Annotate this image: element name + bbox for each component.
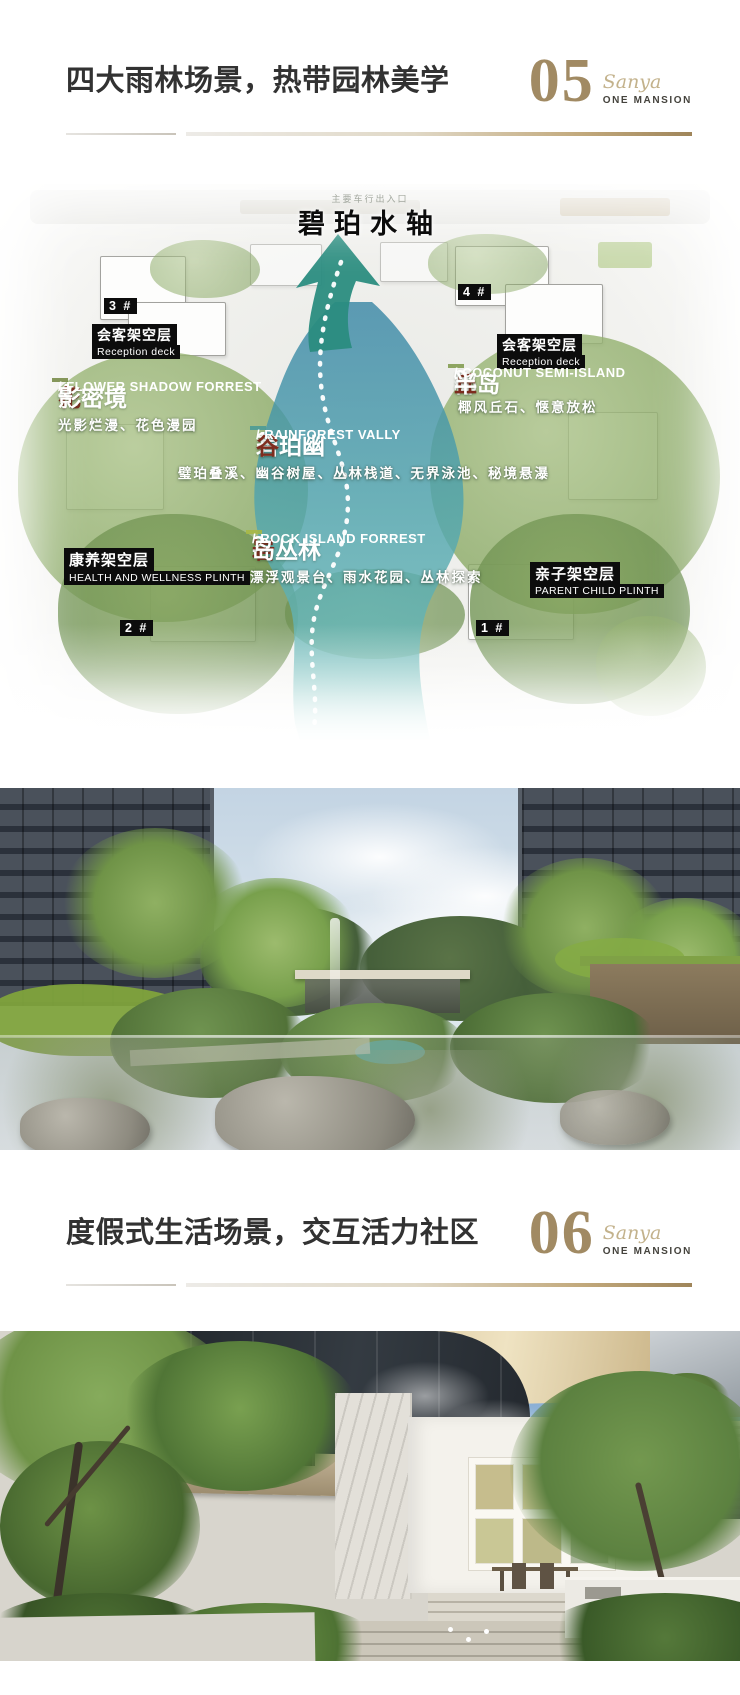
brand-block: 06 Sanya ONE MANSION bbox=[529, 1207, 692, 1260]
section-06-header: 度假式生活场景，交互活力社区 06 Sanya ONE MANSION bbox=[66, 1207, 692, 1288]
garden-render-photo bbox=[0, 788, 740, 1150]
section-05-title: 四大雨林场景，热带园林美学 bbox=[66, 55, 450, 101]
zone-features: 光影烂漫、花色漫园 bbox=[58, 414, 198, 434]
health-wellness-plinth-zh: 康养架空层 bbox=[64, 548, 154, 571]
zone-features: 椰风丘石、惬意放松 bbox=[458, 396, 598, 416]
divider-left-segment bbox=[66, 1284, 176, 1286]
tree-canopy bbox=[0, 1441, 200, 1611]
terrace-chair bbox=[512, 1563, 526, 1589]
building-tag-2: 2 # bbox=[120, 620, 153, 636]
section-divider bbox=[66, 1283, 692, 1287]
brand-script-logo: Sanya bbox=[603, 73, 692, 92]
building-tag-3: 3 # bbox=[104, 298, 137, 314]
section-06-title: 度假式生活场景，交互活力社区 bbox=[66, 1207, 479, 1253]
divider-gold-segment bbox=[186, 1283, 692, 1287]
brand-wordmark: ONE MANSION bbox=[603, 95, 692, 106]
clubhouse-entry-render-photo bbox=[0, 1331, 740, 1661]
window-pane bbox=[475, 1464, 514, 1510]
building-tag-4: 4 # bbox=[458, 284, 491, 300]
parent-child-plinth-zh: 亲子架空层 bbox=[530, 562, 620, 585]
building-tag-1: 1 # bbox=[476, 620, 509, 636]
window-pane bbox=[475, 1518, 514, 1564]
reception-deck-label-en: Reception deck bbox=[92, 345, 180, 359]
parent-child-plinth-en: PARENT CHILD PLINTH bbox=[530, 584, 664, 598]
garden-pavilion-roof bbox=[295, 970, 470, 979]
marble-pillar bbox=[335, 1393, 412, 1599]
section-05-number: 05 bbox=[529, 55, 595, 108]
divider-gold-segment bbox=[186, 132, 692, 136]
zone-features: 璧珀叠溪、幽谷树屋、丛林栈道、无界泳池、秘境悬瀑 bbox=[178, 462, 550, 482]
health-wellness-plinth-en: HEALTH AND WELLNESS PLINTH bbox=[64, 571, 250, 585]
terrace-chair bbox=[540, 1563, 554, 1589]
reception-deck-label-zh: 会客架空层 bbox=[497, 334, 582, 356]
brand-block: 05 Sanya ONE MANSION bbox=[529, 55, 692, 108]
section-05-header: 四大雨林场景，热带园林美学 05 Sanya ONE MANSION bbox=[66, 55, 692, 136]
brand-script-logo: Sanya bbox=[603, 1224, 692, 1243]
reception-deck-label-zh: 会客架空层 bbox=[92, 324, 177, 346]
table-leg bbox=[500, 1571, 504, 1591]
zone-features: 漂浮观景台、雨水花园、丛林探索 bbox=[250, 566, 483, 586]
foreground-rock bbox=[560, 1090, 670, 1145]
master-plan-diagram: 主要车行出入口 碧珀水轴 3 # 4 # 2 # 1 # 会客架空层 Recep… bbox=[0, 184, 740, 740]
marble-planter bbox=[0, 1613, 315, 1662]
section-divider bbox=[66, 132, 692, 136]
section-06-number: 06 bbox=[529, 1207, 595, 1260]
brand-wordmark: ONE MANSION bbox=[603, 1246, 692, 1257]
divider-left-segment bbox=[66, 133, 176, 135]
axis-title: 碧珀水轴 bbox=[298, 202, 442, 241]
